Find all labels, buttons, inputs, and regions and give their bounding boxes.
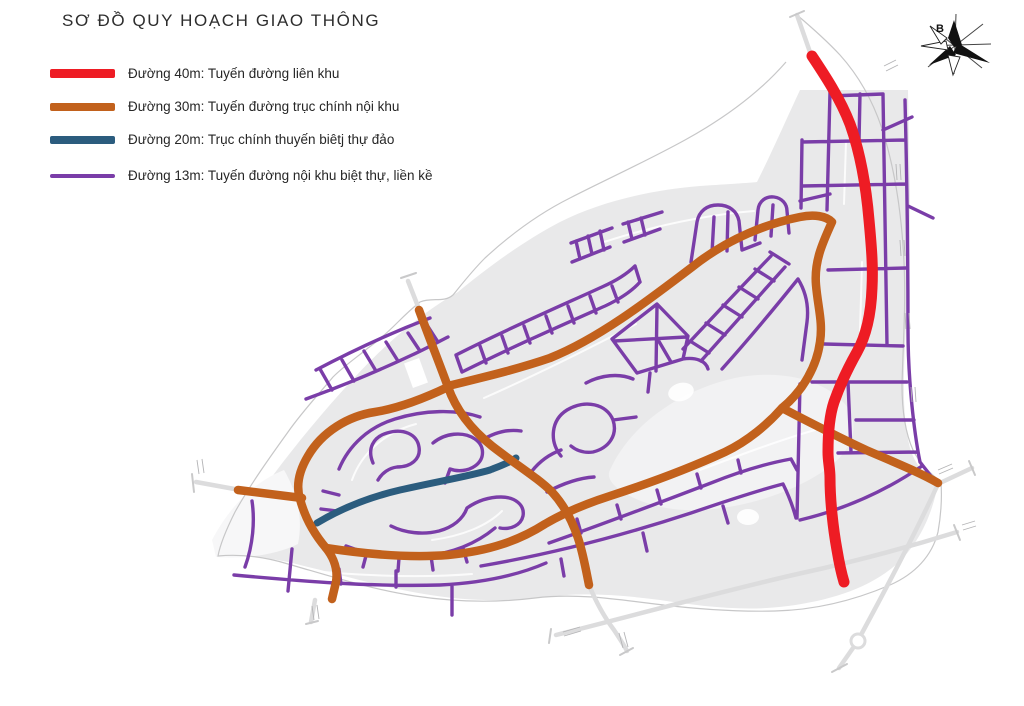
pond [737, 509, 759, 525]
plan-map: B [0, 0, 1024, 706]
minor-road [940, 468, 972, 483]
open-pocket-west [212, 470, 300, 558]
traffic-plan-page: { "title": "SƠ ĐỒ QUY HOẠCH GIAO THÔNG",… [0, 0, 1024, 706]
minor-road [196, 482, 240, 490]
compass-icon: B [921, 14, 991, 75]
compass-north-label: B [936, 23, 944, 35]
roundabout [851, 634, 865, 648]
minor-road [408, 281, 419, 309]
